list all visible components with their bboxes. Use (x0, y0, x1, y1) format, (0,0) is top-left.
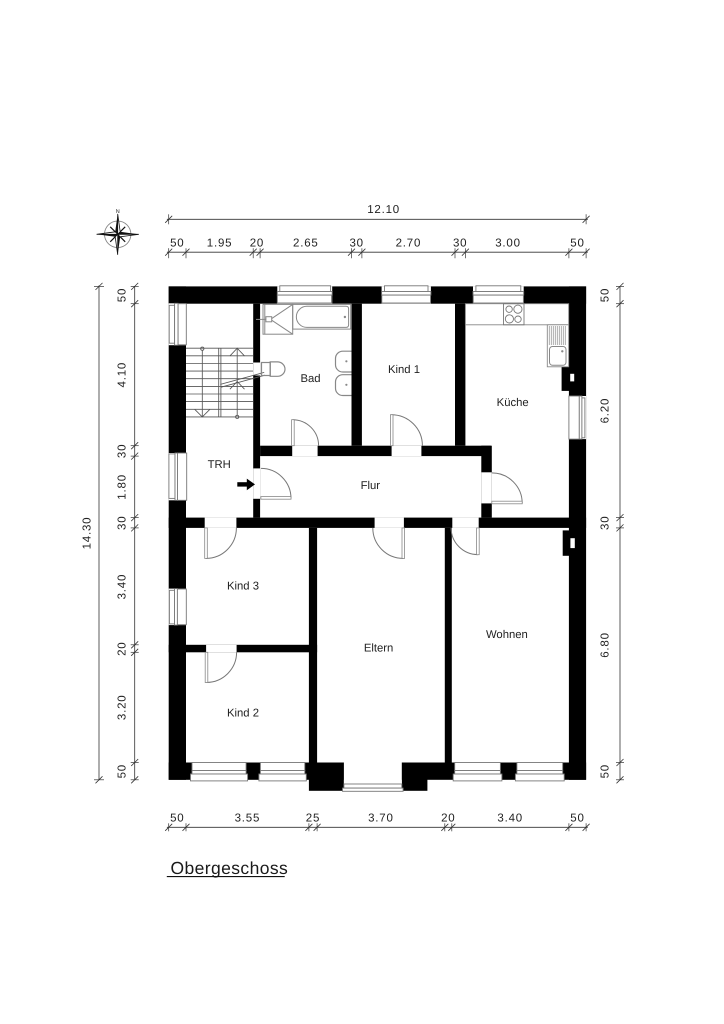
svg-text:50: 50 (170, 813, 184, 825)
svg-text:3.00: 3.00 (495, 238, 521, 250)
svg-text:4.10: 4.10 (117, 362, 129, 388)
svg-text:Obergeschoss: Obergeschoss (171, 858, 289, 878)
svg-text:Kind 3: Kind 3 (227, 581, 259, 593)
svg-text:3.40: 3.40 (497, 813, 523, 825)
svg-text:Flur: Flur (361, 480, 381, 492)
svg-text:Küche: Küche (497, 397, 529, 409)
svg-text:50: 50 (117, 764, 129, 778)
svg-text:30: 30 (117, 516, 129, 530)
svg-text:50: 50 (570, 238, 584, 250)
svg-text:30: 30 (453, 238, 467, 250)
svg-text:50: 50 (117, 288, 129, 302)
svg-text:Bad: Bad (300, 373, 320, 385)
svg-text:Eltern: Eltern (364, 643, 394, 655)
svg-text:TRH: TRH (208, 459, 231, 471)
svg-text:6.80: 6.80 (600, 632, 612, 658)
svg-text:50: 50 (570, 813, 584, 825)
svg-text:30: 30 (600, 516, 612, 530)
svg-text:30: 30 (117, 444, 129, 458)
svg-text:20: 20 (117, 641, 129, 655)
svg-text:3.55: 3.55 (235, 813, 261, 825)
svg-text:N: N (116, 209, 120, 215)
svg-text:2.70: 2.70 (396, 238, 422, 250)
svg-text:1.95: 1.95 (207, 238, 233, 250)
svg-text:20: 20 (250, 238, 264, 250)
svg-text:30: 30 (349, 238, 363, 250)
svg-text:Kind 1: Kind 1 (388, 364, 420, 376)
svg-text:6.20: 6.20 (600, 398, 612, 424)
svg-text:50: 50 (170, 238, 184, 250)
svg-text:Wohnen: Wohnen (486, 629, 528, 641)
svg-text:1.80: 1.80 (117, 474, 129, 500)
svg-text:20: 20 (441, 813, 455, 825)
svg-text:12.10: 12.10 (367, 204, 400, 216)
svg-text:3.20: 3.20 (117, 695, 129, 721)
svg-text:50: 50 (600, 764, 612, 778)
svg-text:3.40: 3.40 (117, 574, 129, 600)
svg-text:25: 25 (306, 813, 320, 825)
svg-text:3.70: 3.70 (368, 813, 394, 825)
svg-text:14.30: 14.30 (81, 517, 93, 550)
svg-text:2.65: 2.65 (293, 238, 319, 250)
svg-text:Kind 2: Kind 2 (227, 708, 259, 720)
svg-text:50: 50 (600, 288, 612, 302)
